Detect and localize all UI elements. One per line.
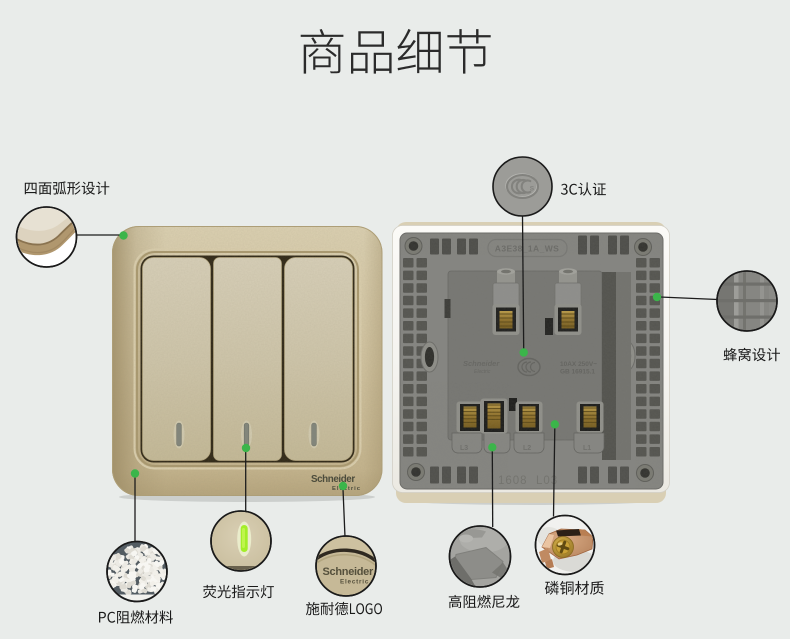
svg-text:Electric: Electric <box>340 579 369 586</box>
svg-text:Schneider: Schneider <box>311 474 355 485</box>
svg-text:Schneider: Schneider <box>323 566 375 578</box>
svg-text:S: S <box>530 185 535 192</box>
